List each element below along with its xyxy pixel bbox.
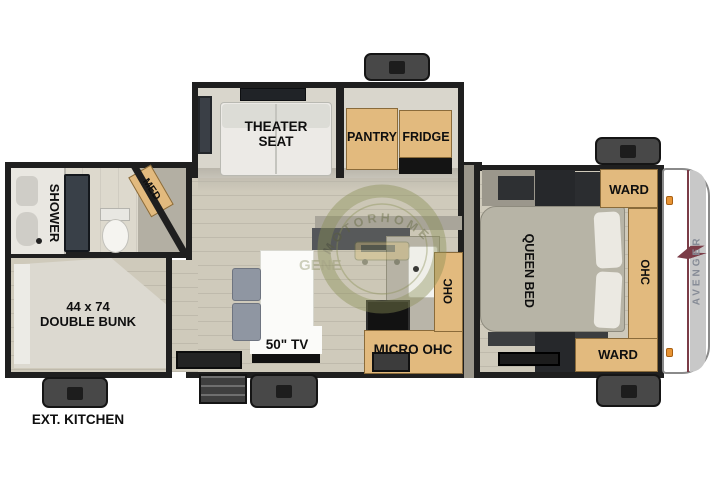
dinette-chair-bottom bbox=[232, 303, 261, 341]
slide-window bbox=[198, 96, 212, 154]
marker-light-top bbox=[666, 196, 673, 205]
bedroom-tv bbox=[498, 176, 534, 200]
dinette-chair-top bbox=[232, 268, 261, 301]
ext-kitchen-hatch bbox=[42, 377, 108, 408]
fridge-label: FRIDGE bbox=[398, 131, 454, 145]
kitchen-ohc-label: OHC bbox=[443, 270, 455, 312]
shower-door-panel bbox=[64, 174, 90, 252]
entry-door-box bbox=[250, 374, 318, 408]
slide-partition-wall bbox=[336, 82, 344, 178]
ext-kitchen-label: EXT. KITCHEN bbox=[20, 413, 136, 428]
ward-bottom-label: WARD bbox=[588, 348, 648, 362]
nightstand-top bbox=[535, 170, 575, 206]
watermark-fragment-text: GENE bbox=[299, 257, 342, 274]
floorplan-canvas: MOTORHOME GENE THEATER SEAT PANTRY FRIDG… bbox=[0, 0, 720, 480]
shower-label: SHOWER bbox=[47, 168, 61, 258]
queen-pillow-top bbox=[594, 211, 623, 268]
ward-top-label: WARD bbox=[600, 183, 658, 197]
ward-niche-dark bbox=[575, 172, 602, 206]
bunk-name-label: DOUBLE BUNK bbox=[28, 315, 148, 329]
shower-head-icon bbox=[36, 238, 42, 244]
tv-label: 50" TV bbox=[252, 338, 322, 353]
pantry-label: PANTRY bbox=[344, 131, 400, 145]
bedroom-box-bottom bbox=[596, 374, 661, 407]
bedroom-rug bbox=[498, 352, 560, 366]
dealer-watermark: MOTORHOME GENE bbox=[305, 172, 459, 326]
bunk-size-label: 44 x 74 bbox=[28, 300, 148, 314]
shower-seat bbox=[16, 176, 38, 206]
avenger-brand-label: AVENGER bbox=[693, 220, 704, 320]
marker-light-bottom bbox=[666, 348, 673, 357]
micro-ohc-label: MICRO OHC bbox=[363, 343, 463, 358]
entry-steps bbox=[199, 374, 247, 404]
tv-50in bbox=[252, 354, 320, 363]
bedroom-ohc-label: OHC bbox=[638, 242, 650, 302]
toilet-bowl bbox=[102, 219, 129, 253]
theater-seat-label: THEATER SEAT bbox=[233, 120, 319, 149]
slide-topper-box-top bbox=[364, 53, 430, 81]
queen-bed-label: QUEEN BED bbox=[521, 221, 535, 321]
queen-pillow-bottom bbox=[594, 271, 623, 328]
bedroom-wall-pocket bbox=[464, 165, 474, 378]
bedroom-box-top bbox=[595, 137, 661, 165]
front-cap-pinstripe bbox=[687, 170, 689, 372]
entry-rug bbox=[176, 351, 242, 369]
shower-pan bbox=[16, 212, 38, 246]
ceiling-vent bbox=[240, 88, 306, 101]
